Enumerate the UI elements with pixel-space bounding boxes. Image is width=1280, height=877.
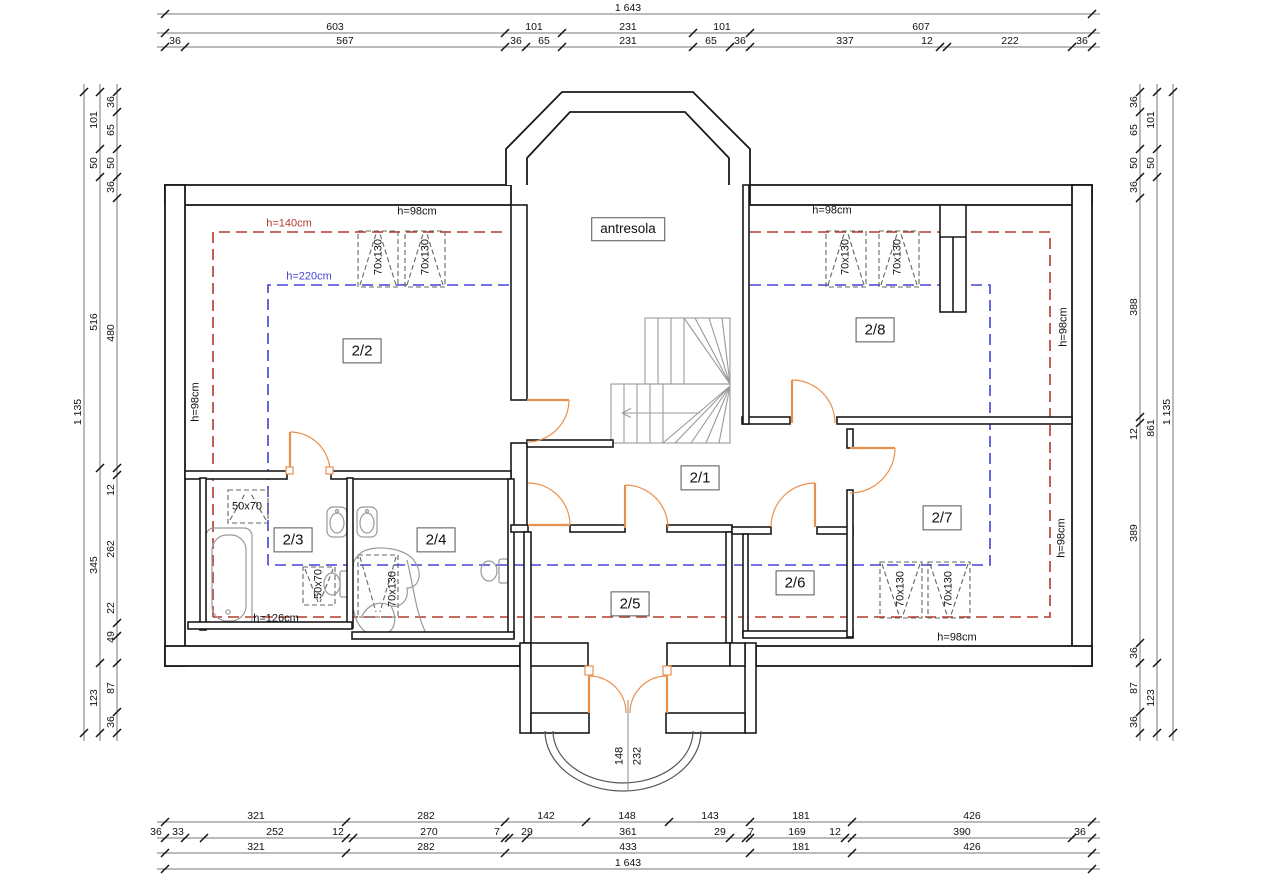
dim-label: 65 xyxy=(538,35,550,47)
dim-label: 388 xyxy=(1128,298,1140,316)
dim-label: 607 xyxy=(912,21,930,33)
dim-label: 7 xyxy=(494,826,500,838)
skylight-70x130 xyxy=(879,231,919,287)
staircase xyxy=(611,318,730,443)
dim-label: 12 xyxy=(921,35,933,47)
skylight-70x130 xyxy=(880,562,922,618)
dim-label: 36 xyxy=(150,826,162,838)
wall-bottom-right xyxy=(756,646,1092,666)
dim-label: 181 xyxy=(792,841,810,853)
door-antresola xyxy=(527,400,569,442)
dim-label: 36 xyxy=(734,35,746,47)
dim-label: 50 xyxy=(1145,157,1157,169)
dim-label: 1 135 xyxy=(72,399,84,425)
dim-label: 22 xyxy=(105,602,117,614)
dim-label: 123 xyxy=(1145,689,1157,707)
dim-label: 567 xyxy=(336,35,354,47)
floor-plan-page: 1 64360310123110160736567366523165363371… xyxy=(0,0,1280,877)
dim-label: 282 xyxy=(417,810,435,822)
dim-chain-left-total: 1 135 xyxy=(72,84,88,741)
dim-label: 87 xyxy=(1128,682,1140,694)
dim-label: 1 135 xyxy=(1161,399,1173,425)
dim-label: 12 xyxy=(1128,428,1140,440)
dim-label: 231 xyxy=(619,35,637,47)
dim-label: 262 xyxy=(105,540,117,558)
floor-plan-drawing: 1 64360310123110160736567366523165363371… xyxy=(0,0,1280,877)
toilet xyxy=(481,559,508,583)
dim-label: 148 xyxy=(618,810,636,822)
dim-label: 433 xyxy=(619,841,637,853)
dim-label: 12 xyxy=(105,484,117,496)
door-hall-west xyxy=(528,483,570,525)
dim-chain-right-minor: 3665503638812389368736 xyxy=(1128,84,1144,741)
door-room-2-2 xyxy=(286,432,333,474)
dim-label: 389 xyxy=(1128,524,1140,542)
dim-label: 36 xyxy=(105,716,117,728)
dim-label: 36 xyxy=(510,35,522,47)
dim-label: 49 xyxy=(105,631,117,643)
dim-label: 50 xyxy=(88,157,100,169)
chimney xyxy=(940,205,966,312)
dim-label: 36 xyxy=(1128,96,1140,108)
dim-label: 345 xyxy=(88,556,100,574)
dim-chain-right-major: 10150861123 xyxy=(1145,84,1161,741)
dim-label: 12 xyxy=(332,826,344,838)
dim-label: 7 xyxy=(748,826,754,838)
dim-label: 101 xyxy=(713,21,731,33)
toilet xyxy=(324,571,349,597)
dim-label: 603 xyxy=(326,21,344,33)
dim-label: 65 xyxy=(105,124,117,136)
dim-label: 36 xyxy=(1074,826,1086,838)
dim-label: 101 xyxy=(88,111,100,129)
dim-label: 516 xyxy=(88,313,100,331)
dim-chain-left-major: 10150516345123 xyxy=(88,84,104,741)
dim-label: 282 xyxy=(417,841,435,853)
dim-label: 426 xyxy=(963,841,981,853)
skylight-70x130 xyxy=(826,231,866,287)
dim-label: 1 643 xyxy=(615,2,641,14)
dim-label: 222 xyxy=(1001,35,1019,47)
skylight-50x70 xyxy=(228,490,268,523)
wall-right xyxy=(1072,185,1092,666)
dim-chain-bottom-minor: 3633252122707293612971691239036 xyxy=(150,826,1100,842)
dim-label: 231 xyxy=(619,21,637,33)
dim-label: 36 xyxy=(169,35,181,47)
dim-label: 50 xyxy=(1128,157,1140,169)
dim-label: 1 643 xyxy=(615,857,641,869)
dim-chain-top-total: 1 643 xyxy=(157,2,1100,18)
dim-label: 337 xyxy=(836,35,854,47)
dim-label: 101 xyxy=(525,21,543,33)
wall-bottom-left xyxy=(165,646,520,666)
dim-label: 33 xyxy=(172,826,184,838)
dim-label: 36 xyxy=(105,181,117,193)
dim-label: 426 xyxy=(963,810,981,822)
dim-chain-right-total: 1 135 xyxy=(1161,84,1177,741)
dim-label: 36 xyxy=(1076,35,1088,47)
door-room-2-6 xyxy=(771,483,815,527)
dim-label: 50 xyxy=(105,157,117,169)
skylight-70x130 xyxy=(405,231,445,287)
dim-chain-bottom-total: 1 643 xyxy=(157,857,1100,873)
door-room-2-5 xyxy=(625,485,668,528)
door-room-2-8 xyxy=(792,380,835,423)
washbasin xyxy=(357,507,377,537)
dim-label: 321 xyxy=(247,841,265,853)
dim-label: 29 xyxy=(521,826,533,838)
dim-label: 36 xyxy=(1128,716,1140,728)
dim-chain-top-minor: 36567366523165363371222236 xyxy=(157,35,1100,51)
washbasin xyxy=(327,507,347,537)
dim-label: 181 xyxy=(792,810,810,822)
dim-label: 361 xyxy=(619,826,637,838)
dim-label: 252 xyxy=(266,826,284,838)
dim-label: 321 xyxy=(247,810,265,822)
dim-label: 143 xyxy=(701,810,719,822)
dim-label: 65 xyxy=(705,35,717,47)
dim-label: 12 xyxy=(829,826,841,838)
dim-chain-bottom-rooms: 321282142148143181426 xyxy=(157,810,1100,826)
wall-top-right xyxy=(750,185,1092,205)
dim-label: 87 xyxy=(105,682,117,694)
dim-label: 169 xyxy=(788,826,806,838)
wall-top-left xyxy=(165,185,511,205)
dim-label: 29 xyxy=(714,826,726,838)
dim-label: 101 xyxy=(1145,111,1157,129)
dim-label: 36 xyxy=(1128,181,1140,193)
skylight-70x130 xyxy=(928,562,970,618)
height-line-220cm xyxy=(268,285,990,565)
bay-wall-fill xyxy=(506,92,750,185)
skylight-70x130 xyxy=(358,231,398,287)
dim-label: 36 xyxy=(105,96,117,108)
dim-label: 270 xyxy=(420,826,438,838)
dim-chain-bottom-major: 321282433181426 xyxy=(157,841,1100,857)
dim-label: 65 xyxy=(1128,124,1140,136)
dim-label: 36 xyxy=(1128,647,1140,659)
dim-label: 142 xyxy=(537,810,555,822)
wall-left xyxy=(165,185,185,666)
dim-label: 861 xyxy=(1145,419,1157,437)
door-room-2-7 xyxy=(850,448,895,493)
dim-label: 390 xyxy=(953,826,971,838)
dim-label: 480 xyxy=(105,324,117,342)
dim-chain-left-minor: 366550364801226222498736 xyxy=(105,84,121,741)
dim-label: 123 xyxy=(88,689,100,707)
